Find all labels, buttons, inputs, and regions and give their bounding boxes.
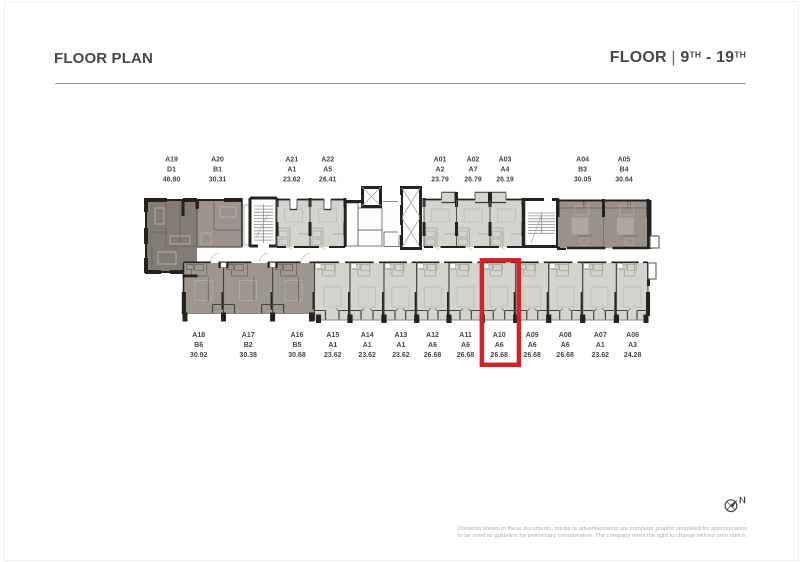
svg-text:A04B330.05: A04B330.05 <box>574 157 592 184</box>
svg-text:A14A123.62: A14A123.62 <box>358 332 376 359</box>
svg-text:A07A123.62: A07A123.62 <box>592 332 610 359</box>
svg-text:A05B430.64: A05B430.64 <box>615 157 633 184</box>
svg-text:A03A426.19: A03A426.19 <box>496 157 514 184</box>
svg-text:A02A726.79: A02A726.79 <box>464 157 482 184</box>
svg-text:A21A123.62: A21A123.62 <box>283 157 301 184</box>
svg-text:A13A123.62: A13A123.62 <box>392 332 410 359</box>
svg-text:A06A324.28: A06A324.28 <box>624 332 642 359</box>
svg-text:A22A526.41: A22A526.41 <box>319 157 337 184</box>
svg-text:A01A223.79: A01A223.79 <box>431 157 449 184</box>
svg-text:A12A626.68: A12A626.68 <box>424 332 442 359</box>
svg-text:A19D146.80: A19D146.80 <box>163 157 181 184</box>
svg-text:A17B230.38: A17B230.38 <box>239 332 257 359</box>
svg-text:A08A626.68: A08A626.68 <box>556 332 574 359</box>
svg-text:A15A123.62: A15A123.62 <box>324 332 342 359</box>
svg-text:A10A626.68: A10A626.68 <box>490 332 508 359</box>
svg-text:A20B130.31: A20B130.31 <box>209 157 227 184</box>
svg-text:A11A626.68: A11A626.68 <box>457 332 475 359</box>
svg-text:A18B630.92: A18B630.92 <box>190 332 208 359</box>
svg-text:A09A626.68: A09A626.68 <box>523 332 541 359</box>
svg-text:A16B530.68: A16B530.68 <box>288 332 306 359</box>
